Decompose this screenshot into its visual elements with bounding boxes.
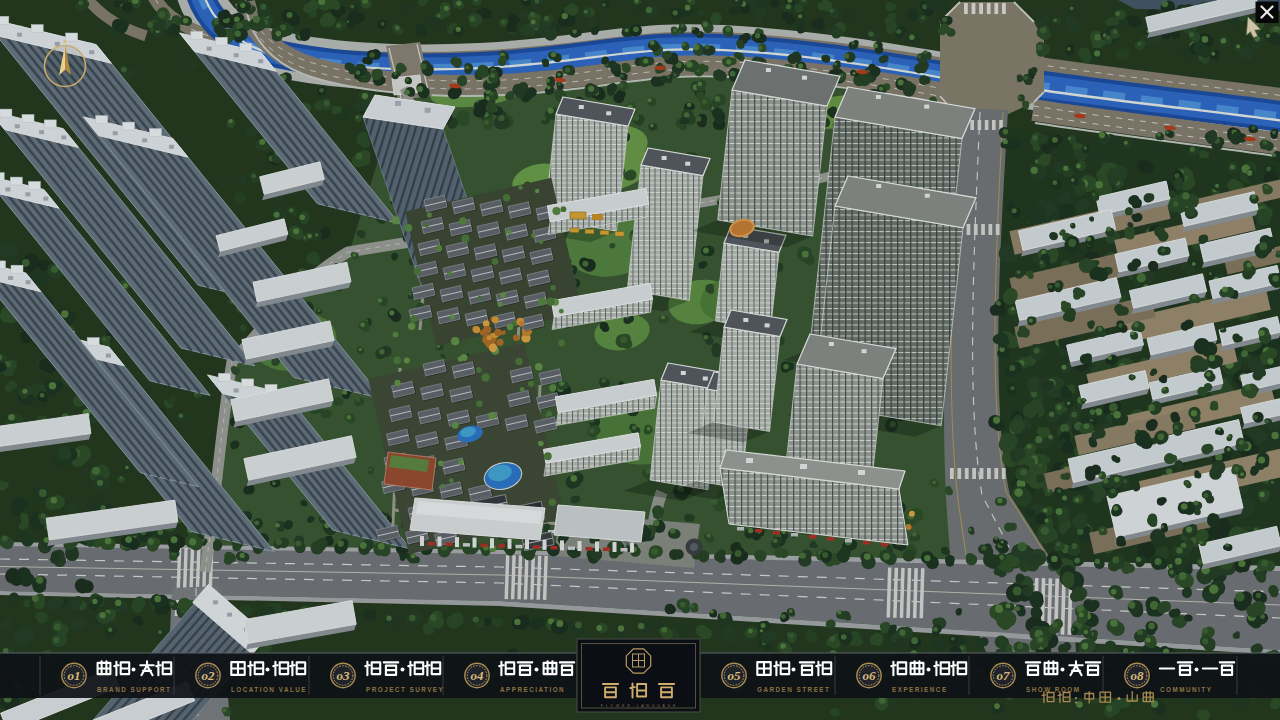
svg-text:o6: o6 <box>863 668 877 683</box>
svg-text:COMMUNITY: COMMUNITY <box>1160 686 1212 693</box>
svg-text:o4: o4 <box>471 668 485 683</box>
svg-text:o5: o5 <box>728 668 742 683</box>
svg-text:SHOW ROOM: SHOW ROOM <box>1026 686 1080 693</box>
svg-text:o1: o1 <box>68 668 81 683</box>
svg-text:APPRECIATION: APPRECIATION <box>500 686 565 693</box>
svg-text:o3: o3 <box>337 668 351 683</box>
svg-text:BRAND SUPPORT: BRAND SUPPORT <box>97 686 171 693</box>
svg-text:GARDEN STREET: GARDEN STREET <box>757 686 830 693</box>
svg-text:o7: o7 <box>997 668 1011 683</box>
svg-text:o2: o2 <box>202 668 216 683</box>
svg-text:o8: o8 <box>1131 668 1145 683</box>
svg-text:EXPERIENCE: EXPERIENCE <box>892 686 948 693</box>
svg-text:F L O W E R · L A N G U A G E: F L O W E R · L A N G U A G E <box>601 704 677 708</box>
svg-text:PROJECT SURVEY: PROJECT SURVEY <box>366 686 444 693</box>
svg-text:LOCATION VALUE: LOCATION VALUE <box>231 686 307 693</box>
